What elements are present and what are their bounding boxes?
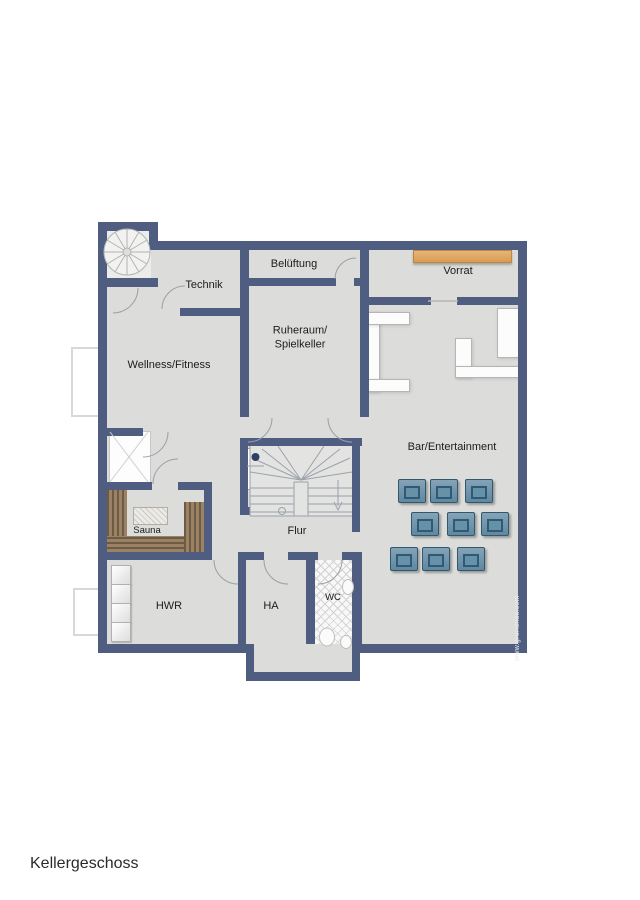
spiral-staircase-icon [104, 229, 150, 275]
room-label-flur: Flur [288, 525, 307, 539]
toilet-icon [320, 628, 352, 649]
room-label-sauna: Sauna [133, 525, 160, 537]
room-label-wellness: Wellness/Fitness [128, 359, 211, 373]
room-label-ruheraum: Ruheraum/ Spielkeller [273, 324, 327, 352]
plan-linework [0, 0, 640, 900]
staircase-icon [250, 446, 352, 516]
room-label-hwr: HWR [156, 600, 182, 614]
room-label-belueftung: Belüftung [271, 258, 317, 272]
room-label-wc: WC [325, 592, 341, 604]
sink-icon [343, 580, 354, 595]
room-label-vorrat: Vorrat [443, 265, 472, 279]
room-label-technik: Technik [185, 279, 222, 293]
room-label-ha: HA [263, 600, 278, 614]
floor-plan: Technik Belüftung Vorrat Wellness/Fitnes… [0, 0, 640, 900]
watermark-text: www.grundriss.com [514, 566, 521, 661]
floor-title: Kellergeschoss [30, 855, 139, 873]
room-label-bar: Bar/Entertainment [408, 441, 497, 455]
shower-x-icon [110, 432, 148, 482]
